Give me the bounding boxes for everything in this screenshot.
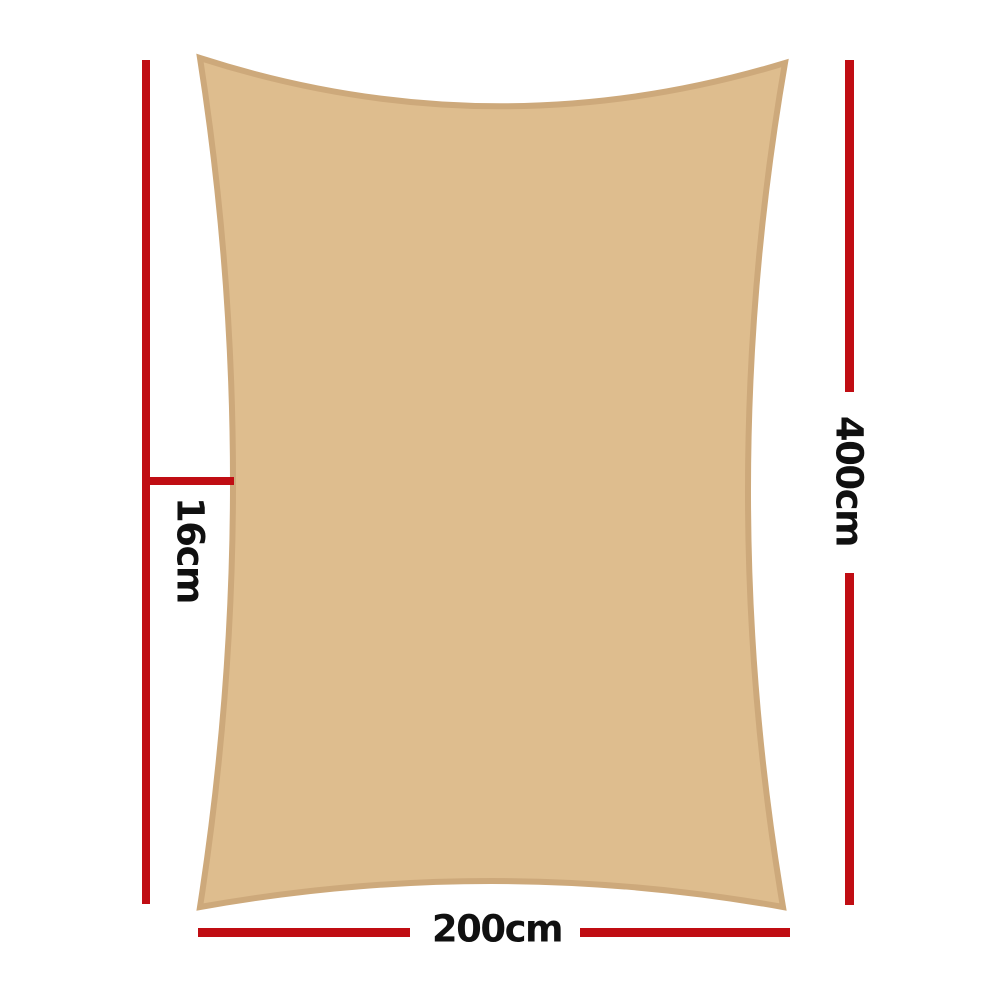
height-dimension-line-top (845, 60, 854, 392)
side-measurement-label: 16cm (172, 497, 209, 603)
sail-fabric-shape (200, 58, 785, 907)
width-dimension-line-right (580, 928, 790, 937)
height-dimension-line-bottom (845, 573, 854, 905)
width-dimension-line-left (198, 928, 410, 937)
height-measurement-label: 400cm (831, 416, 868, 546)
width-measurement-label: 200cm (432, 911, 562, 948)
side-dimension-tick (142, 477, 234, 485)
shade-sail-dimension-diagram: 16cm 400cm 200cm (0, 0, 1000, 1000)
